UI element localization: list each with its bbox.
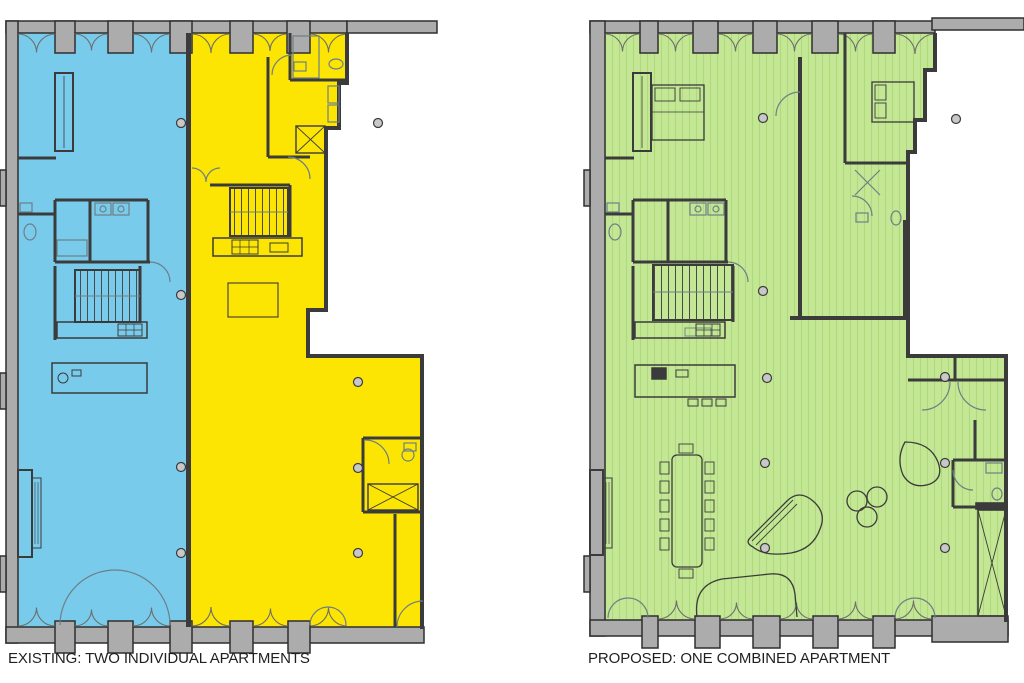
party-wall-beam	[347, 21, 437, 33]
existing-floor-plan	[0, 0, 460, 683]
demising-wall	[186, 33, 191, 627]
unit-fills	[605, 33, 1006, 620]
floor-plan-comparison: EXISTING: TWO INDIVIDUAL APARTMENTS	[0, 0, 1024, 683]
unit-a-blue-area	[18, 33, 189, 627]
floor-boards-texture	[605, 33, 1006, 620]
existing-plan-caption: EXISTING: TWO INDIVIDUAL APARTMENTS	[8, 650, 310, 667]
unit-b-yellow-area	[189, 33, 422, 627]
party-wall-beam	[932, 18, 1024, 30]
proposed-floor-plan	[580, 0, 1024, 683]
unit-fills	[18, 33, 422, 627]
corner-wall-thick	[932, 616, 1008, 642]
existing-plan-figure: EXISTING: TWO INDIVIDUAL APARTMENTS	[0, 0, 460, 683]
proposed-plan-figure: PROPOSED: ONE COMBINED APARTMENT	[580, 0, 1024, 683]
proposed-plan-caption: PROPOSED: ONE COMBINED APARTMENT	[588, 650, 890, 667]
